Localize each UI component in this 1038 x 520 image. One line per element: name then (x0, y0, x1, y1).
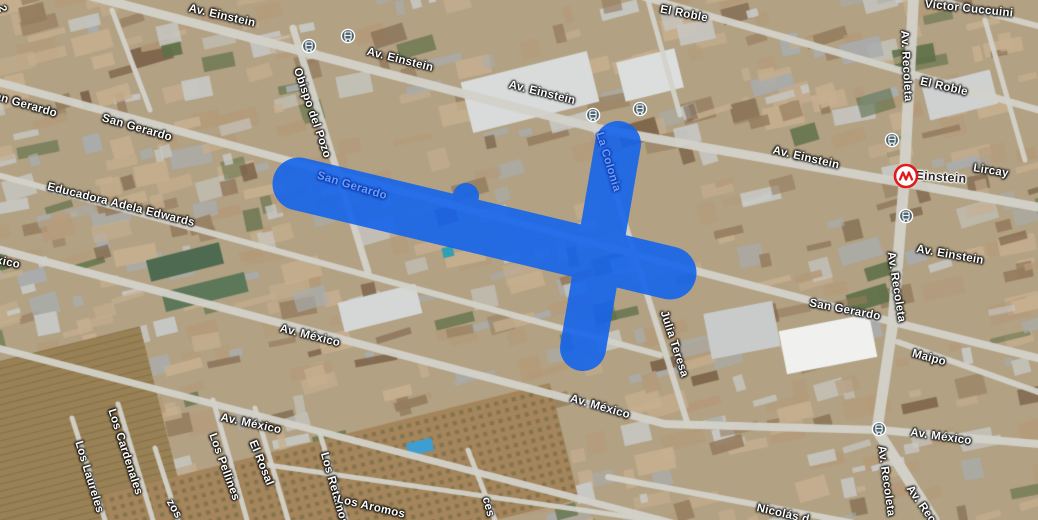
metro-station-icon[interactable] (892, 162, 920, 190)
bus-stop-icon[interactable] (633, 102, 648, 117)
satellite-imagery[interactable] (0, 0, 1038, 520)
bus-stop-icon[interactable] (302, 39, 317, 54)
bus-stop-icon[interactable] (341, 29, 356, 44)
map-viewport: Av. EinsteinAv. EinsteinAv. EinsteinAv. … (0, 0, 1038, 520)
bus-stop-icon[interactable] (586, 108, 601, 123)
bus-stop-icon[interactable] (872, 422, 887, 437)
bus-stop-icon[interactable] (885, 133, 900, 148)
bus-stop-icon[interactable] (899, 209, 914, 224)
